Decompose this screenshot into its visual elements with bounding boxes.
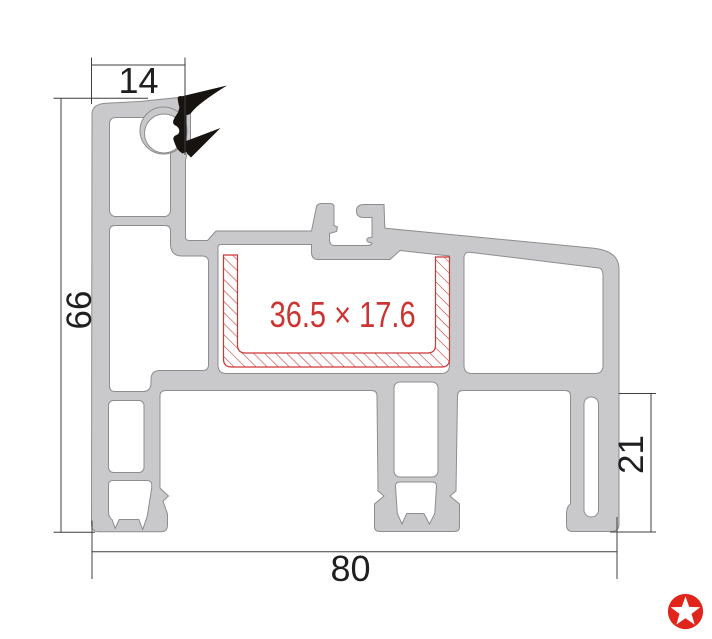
svg-text:14: 14 — [118, 60, 158, 101]
svg-text:80: 80 — [330, 548, 370, 589]
svg-text:66: 66 — [60, 291, 99, 330]
svg-text:36.5 × 17.6: 36.5 × 17.6 — [270, 294, 416, 335]
svg-text:21: 21 — [612, 435, 651, 474]
